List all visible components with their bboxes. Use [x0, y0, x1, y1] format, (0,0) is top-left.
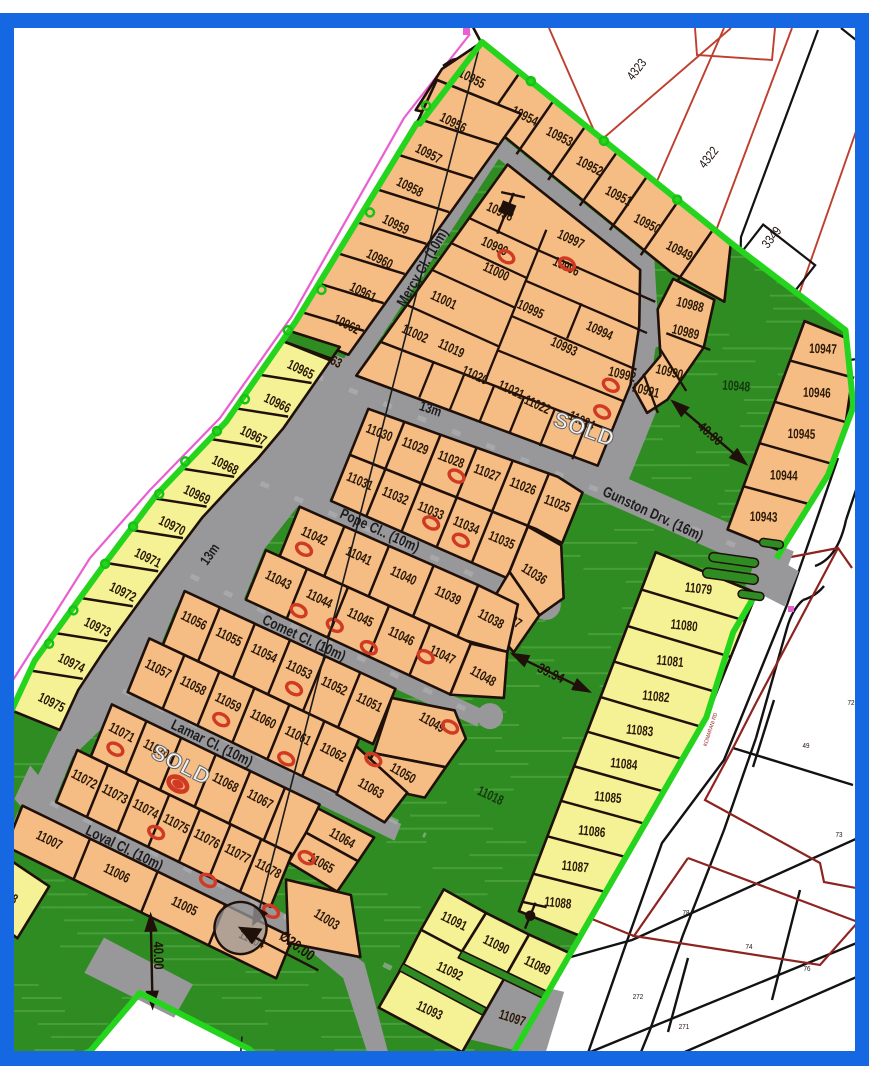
svg-text:11079: 11079	[684, 579, 713, 598]
svg-text:11080: 11080	[670, 616, 699, 635]
svg-text:11081: 11081	[656, 652, 685, 671]
svg-text:73: 73	[836, 832, 843, 839]
svg-text:10947: 10947	[809, 340, 837, 357]
svg-text:11087: 11087	[561, 857, 590, 876]
svg-text:11082: 11082	[642, 687, 671, 706]
svg-text:11088: 11088	[544, 893, 573, 912]
svg-text:10948: 10948	[722, 377, 751, 395]
svg-text:10946: 10946	[803, 384, 831, 401]
svg-text:10945: 10945	[787, 425, 815, 442]
svg-text:40.00: 40.00	[150, 941, 166, 969]
svg-text:11085: 11085	[594, 788, 623, 807]
svg-text:76: 76	[804, 966, 811, 973]
svg-text:271: 271	[679, 1024, 690, 1031]
svg-text:78: 78	[683, 910, 690, 917]
svg-text:11086: 11086	[578, 822, 607, 841]
svg-text:11084: 11084	[610, 754, 639, 773]
svg-text:10944: 10944	[770, 467, 798, 484]
svg-text:72: 72	[848, 700, 855, 707]
svg-text:11083: 11083	[625, 721, 654, 740]
svg-text:74: 74	[746, 944, 753, 951]
svg-text:272: 272	[633, 994, 644, 1001]
svg-text:10943: 10943	[750, 508, 778, 525]
svg-text:49: 49	[803, 743, 810, 750]
